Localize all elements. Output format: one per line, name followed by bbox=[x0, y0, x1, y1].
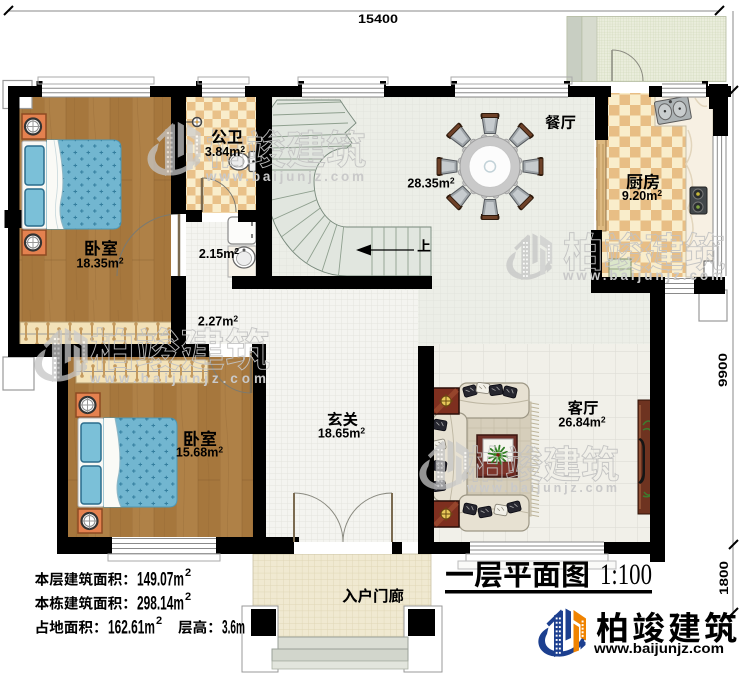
svg-text:1800: 1800 bbox=[717, 561, 731, 595]
svg-text:3.6m: 3.6m bbox=[222, 618, 245, 639]
svg-text:15.68m2: 15.68m2 bbox=[176, 445, 223, 460]
svg-text:149.07m: 149.07m bbox=[137, 570, 184, 591]
svg-text:2.27m2: 2.27m2 bbox=[198, 314, 238, 329]
svg-text:18.65m2: 18.65m2 bbox=[318, 426, 365, 441]
svg-text:3.84m2: 3.84m2 bbox=[205, 144, 245, 159]
svg-text:1:100: 1:100 bbox=[600, 558, 652, 591]
svg-text:2: 2 bbox=[185, 567, 191, 579]
svg-text:298.14m: 298.14m bbox=[137, 594, 184, 615]
svg-text:28.35m2: 28.35m2 bbox=[407, 176, 454, 191]
svg-text:9900: 9900 bbox=[716, 353, 730, 387]
svg-text:2: 2 bbox=[185, 591, 191, 603]
svg-text:18.35m2: 18.35m2 bbox=[76, 256, 123, 271]
svg-text:2.15m2: 2.15m2 bbox=[199, 246, 239, 261]
svg-text:www.baijunjz.com: www.baijunjz.com bbox=[593, 641, 724, 656]
svg-text:162.61m: 162.61m bbox=[108, 618, 155, 639]
svg-text:2: 2 bbox=[156, 615, 162, 627]
svg-text:15400: 15400 bbox=[358, 12, 398, 26]
svg-text:9.20m2: 9.20m2 bbox=[622, 188, 662, 203]
svg-text:26.84m2: 26.84m2 bbox=[558, 415, 605, 430]
